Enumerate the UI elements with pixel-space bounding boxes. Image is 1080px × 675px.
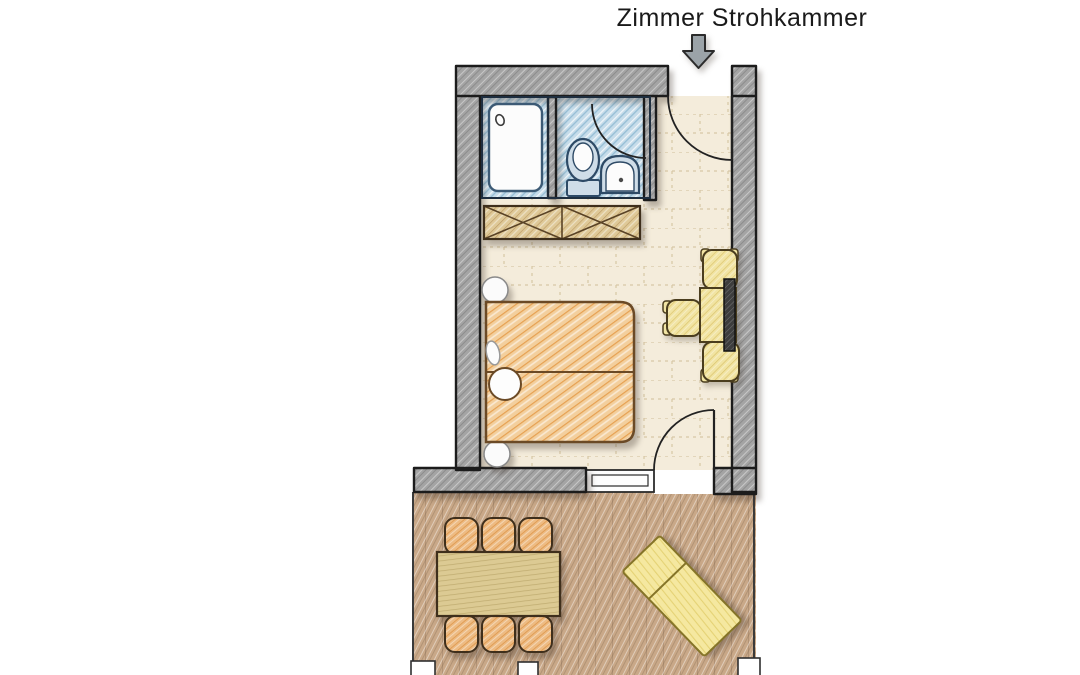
- sink: [601, 156, 639, 193]
- wardrobe: [484, 206, 640, 239]
- terrace-door-opening: [654, 470, 714, 494]
- deck-post: [518, 662, 538, 675]
- terrace-openings: [586, 470, 714, 494]
- double-bed: [482, 277, 634, 467]
- dining-table: [437, 552, 560, 616]
- window: [586, 470, 654, 492]
- floor-plan-canvas: Zimmer Strohkammer: [0, 0, 1080, 675]
- sink-drain-icon: [619, 178, 623, 182]
- toilet: [567, 139, 600, 196]
- entrance-arrow-icon: [683, 35, 714, 68]
- pillow-round: [489, 368, 521, 400]
- radiator: [724, 279, 735, 351]
- dining-set: [437, 518, 560, 652]
- bed-cushion-top: [482, 277, 508, 303]
- desk-chair: [663, 300, 701, 336]
- deck-post: [411, 661, 435, 675]
- floor-plan-drawing: [0, 0, 1080, 675]
- bed-cushion-bottom: [484, 441, 510, 467]
- deck-post: [738, 658, 760, 675]
